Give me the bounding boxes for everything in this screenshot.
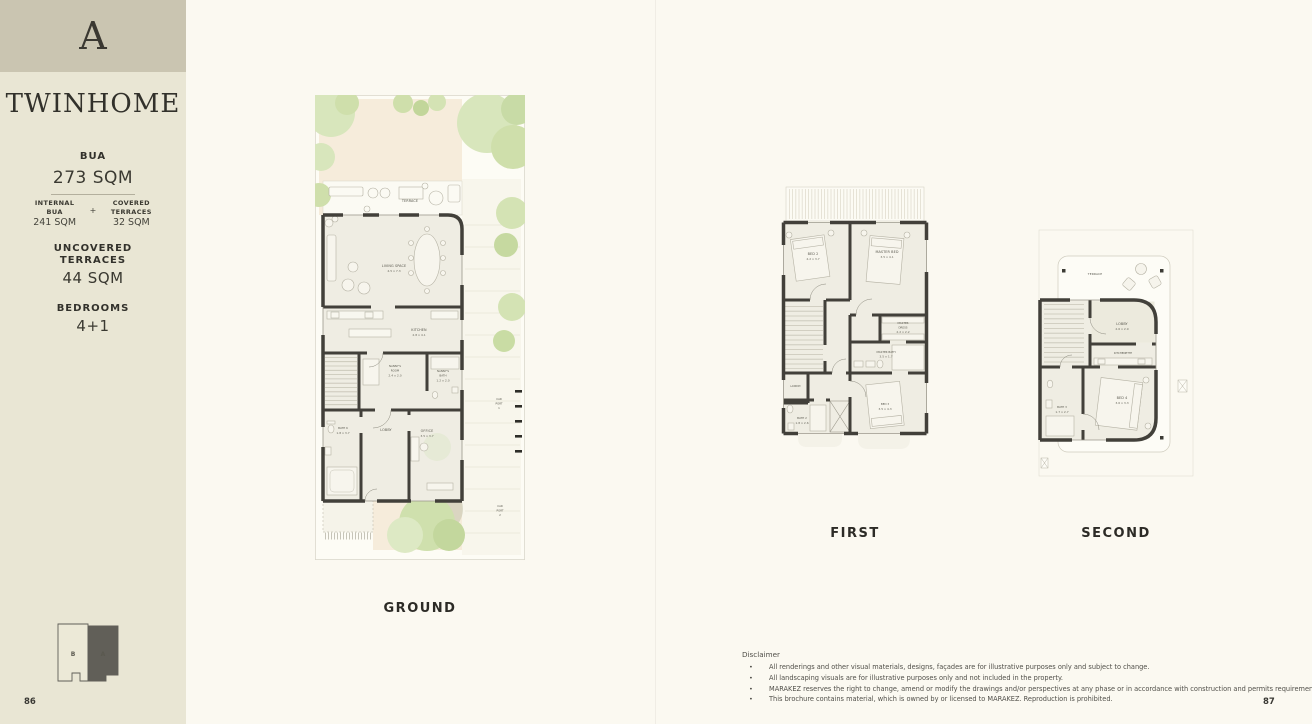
svg-text:DRESS: DRESS [898, 326, 907, 330]
disclaimer-item: • This brochure contains material, which… [742, 694, 1312, 705]
svg-text:PORT: PORT [496, 509, 503, 513]
first-caption: FIRST [780, 526, 930, 541]
first-room-label-bath2: BATH 2 [797, 416, 807, 420]
svg-text:3.5 x 1.7: 3.5 x 1.7 [879, 355, 892, 359]
spec-divider [51, 194, 135, 195]
svg-text:2: 2 [499, 513, 501, 517]
bua-label: BUA [0, 151, 186, 163]
ground-room-label-nannys-room: NANNY'S [389, 364, 401, 368]
ground-label-carport-2: CAR [497, 504, 503, 508]
ground-label-carport-1: CAR [496, 397, 502, 401]
svg-text:2.8 x 4.1: 2.8 x 4.1 [412, 333, 425, 337]
plus-sign: + [90, 206, 97, 215]
second-room-label-bath3: BATH 3 [1057, 405, 1067, 409]
bullet: • [742, 662, 769, 673]
minimap-unit-a-label: A [101, 651, 106, 658]
ground-room-label-bath6: BATH 6 [338, 426, 348, 430]
second-room-label-bed4: BED 4 [1117, 396, 1128, 400]
svg-text:1.7 x 2.7: 1.7 x 2.7 [1055, 410, 1068, 414]
second-room-label-lobby: LOBBY [1116, 322, 1128, 326]
ground-room-label-lobby: LOBBY [380, 428, 392, 432]
covered-terraces-value: 32 SQM [100, 217, 162, 228]
svg-text:ROOM: ROOM [391, 369, 400, 373]
svg-text:BATH: BATH [439, 374, 446, 378]
disclaimer-item: • All landscaping visuals are for illust… [742, 673, 1312, 684]
bedrooms-value: 4+1 [0, 317, 186, 335]
first-room-label-bed3: BED 3 [881, 402, 889, 406]
svg-text:1.2 x 2.0: 1.2 x 2.0 [436, 379, 449, 383]
svg-text:2.2 x 2.2: 2.2 x 2.2 [896, 330, 909, 334]
spec-list: BUA 273 SQM INTERNALBUA 241 SQM + COVERE… [0, 151, 186, 335]
svg-text:4.5 x 7.3: 4.5 x 7.3 [387, 269, 400, 273]
svg-text:1: 1 [498, 406, 500, 410]
unit-badge: A [0, 0, 186, 72]
ground-room-label-office: OFFICE [421, 429, 434, 433]
covered-terraces: COVEREDTERRACES 32 SQM [100, 199, 162, 227]
bullet: • [742, 673, 769, 684]
second-room-label-terrace: TERRACE [1087, 272, 1102, 276]
svg-text:2.4 x 2.0: 2.4 x 2.0 [388, 374, 401, 378]
page-fold-divider [655, 0, 656, 724]
first-room-label-master-bed: MASTER BED [875, 250, 898, 254]
first-floor-plan: BED 2 4.2 x 3.7 MASTER BED 3.5 x 4.1 MAS… [780, 185, 930, 475]
svg-text:4.2 x 3.7: 4.2 x 3.7 [806, 257, 819, 261]
svg-text:3.5 x 4.1: 3.5 x 4.1 [880, 255, 893, 259]
ground-room-label-terrace: TERRACE [401, 199, 418, 203]
first-room-label-master-bath: MASTER BATH [876, 350, 895, 354]
first-room-label-master-dress: MASTER [897, 321, 908, 325]
second-room-label-kitchenette: KITCHENETTE [1114, 351, 1133, 355]
bua-value: 273 SQM [0, 168, 186, 188]
svg-text:3.5 x 3.7: 3.5 x 3.7 [420, 434, 433, 438]
sidebar: A TWINHOME BUA 273 SQM INTERNALBUA 241 S… [0, 0, 186, 724]
ground-caption: GROUND [315, 601, 525, 616]
unit-letter: A [79, 17, 106, 55]
uncovered-terraces-label: UNCOVEREDTERRACES [0, 243, 186, 267]
internal-bua-value: 241 SQM [24, 217, 86, 228]
svg-text:PORT: PORT [495, 402, 502, 406]
disclaimer-item: • All renderings and other visual materi… [742, 662, 1312, 673]
disclaimer-title: Disclaimer [742, 650, 1312, 659]
svg-text:3.5 x 4.3: 3.5 x 4.3 [878, 407, 891, 411]
uncovered-terraces-value: 44 SQM [0, 269, 186, 287]
first-room-label-laundry: LAUNDRY [790, 385, 801, 388]
minimap-unit-b-label: B [71, 651, 76, 658]
brochure-spread: { "page": { "left_number": "86", "right_… [0, 0, 1312, 724]
first-room-label-bed2: BED 2 [808, 252, 819, 256]
second-caption: SECOND [1038, 526, 1194, 541]
ground-floor-plan: TERRACE LIVING SPACE 4.5 x 7.3 KITCHEN 2… [315, 95, 525, 560]
svg-text:3.6 x 3.3: 3.6 x 3.3 [1115, 401, 1128, 405]
disclaimer: Disclaimer • All renderings and other vi… [742, 650, 1312, 705]
page-number-left: 86 [24, 697, 36, 707]
disclaimer-item: • MARAKEZ reserves the right to change, … [742, 684, 1312, 695]
bullet: • [742, 684, 769, 695]
unit-type-name: TWINHOME [0, 89, 186, 119]
ground-room-label-living: LIVING SPACE [382, 264, 406, 268]
svg-text:1.8 x 3.7: 1.8 x 3.7 [336, 431, 349, 435]
ground-room-label-kitchen: KITCHEN [411, 328, 427, 332]
ground-room-label-nannys-bath: NANNY'S [437, 369, 449, 373]
pergola [786, 187, 924, 221]
svg-text:1.8 x 2.6: 1.8 x 2.6 [795, 421, 808, 425]
bua-breakdown: INTERNALBUA 241 SQM + COVEREDTERRACES 32… [0, 199, 186, 227]
balconies [798, 433, 910, 449]
unit-locator-minimap: B A [50, 616, 126, 692]
internal-bua: INTERNALBUA 241 SQM [24, 199, 86, 227]
bullet: • [742, 694, 769, 705]
bedrooms-label: BEDROOMS [0, 303, 186, 315]
second-floor-plan: TERRACE LOBBY 2.6 x 2.9 KITCHENETTE BED … [1038, 222, 1194, 482]
svg-text:2.6 x 2.9: 2.6 x 2.9 [1115, 327, 1128, 331]
